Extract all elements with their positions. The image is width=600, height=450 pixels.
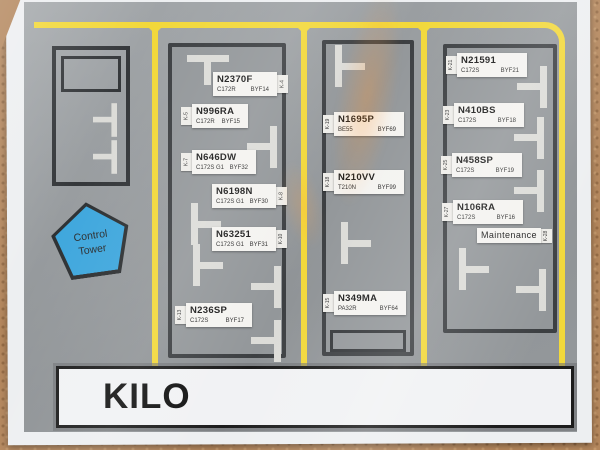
aircraft-code: BYF31	[250, 242, 268, 248]
taxiway-line-vertical-2	[301, 27, 307, 368]
spot-number-text: K-23	[446, 110, 451, 121]
spot-number-text: K-25	[444, 160, 449, 171]
spot-number-text: K-8	[279, 192, 284, 200]
aircraft-code: BYF14	[251, 87, 269, 93]
spot-number-tab: K-18	[323, 173, 334, 191]
aircraft-code: BYF30	[250, 199, 268, 205]
ramp-name: KILO	[103, 377, 191, 417]
aircraft-code: BYF21	[501, 68, 519, 74]
aircraft-model: C172S G1	[216, 242, 244, 248]
aircraft-plate: N6198N C172S G1 BYF30	[212, 184, 276, 208]
aircraft-code: BYF17	[226, 318, 244, 324]
aircraft-registration: N6198N	[216, 186, 272, 197]
aircraft-plate: Maintenance	[477, 228, 541, 243]
aircraft-registration: N63251	[216, 229, 272, 240]
t-stem	[93, 117, 117, 123]
aircraft-details: C172S G1 BYF30	[216, 199, 272, 205]
parking-spot-label: K-28 Maintenance	[477, 228, 541, 243]
aircraft-plate: N63251 C172S G1 BYF31	[212, 227, 276, 251]
t-stem	[247, 143, 277, 150]
aircraft-registration: N349MA	[338, 293, 402, 304]
aircraft-model: C172S	[456, 168, 474, 174]
aircraft-details: BE55 BYF69	[338, 127, 400, 133]
aircraft-registration: N210VV	[338, 172, 400, 183]
aircraft-model: C172S	[190, 318, 208, 324]
t-stem	[193, 262, 223, 269]
spot-number-text: K-15	[326, 298, 331, 309]
aircraft-plate: N458SP C172S BYF19	[452, 153, 522, 177]
spot-number-text: K-18	[326, 177, 331, 188]
spot-number-text: K-4	[280, 80, 285, 88]
aircraft-plate: N1695P BE55 BYF69	[334, 112, 404, 136]
t-stem	[204, 55, 211, 85]
aircraft-details: T210N BYF99	[338, 185, 400, 191]
tiedown-t-mark	[93, 103, 117, 137]
aircraft-registration: N458SP	[456, 155, 518, 166]
spot-number-text: K-10	[279, 234, 284, 245]
aircraft-plate: N236SP C172S BYF17	[186, 303, 252, 327]
spot-number-tab: K-8	[276, 187, 287, 205]
aircraft-code: BYF64	[380, 306, 398, 312]
t-stem	[459, 266, 489, 273]
control-tower-label: Control Tower	[47, 197, 135, 282]
spot-number-tab: K-4	[277, 75, 288, 93]
t-stem	[514, 134, 544, 141]
aircraft-plate: N996RA C172R BYF15	[192, 104, 248, 128]
aircraft-details: C172R BYF15	[196, 119, 244, 125]
t-stem	[516, 286, 546, 293]
aircraft-model: T210N	[338, 185, 356, 191]
spot-number-tab: K-13	[175, 306, 186, 324]
ramp-chart-photo: Control Tower	[0, 0, 600, 450]
control-tower-marker: Control Tower	[47, 197, 135, 282]
tiedown-t-mark	[93, 140, 117, 174]
aircraft-code: BYF18	[498, 118, 516, 124]
t-stem	[514, 187, 544, 194]
aircraft-registration: N236SP	[190, 305, 248, 316]
aircraft-details: C172S BYF18	[458, 118, 520, 124]
aircraft-details: C172S BYF16	[457, 215, 519, 221]
spot-number-tab: K-15	[323, 294, 334, 312]
aircraft-details: C172S BYF17	[190, 318, 248, 324]
aircraft-model: C172R	[217, 87, 236, 93]
aircraft-model: BE55	[338, 127, 353, 133]
aircraft-registration: N996RA	[196, 106, 244, 117]
aircraft-code: BYF16	[497, 215, 515, 221]
spot-number-tab: K-21	[446, 56, 457, 74]
spot-number-tab: K-19	[323, 115, 334, 133]
aircraft-details: C172R BYF14	[217, 87, 273, 93]
spot-number-tab: K-27	[442, 203, 453, 221]
aircraft-code: BYF69	[378, 127, 396, 133]
spot-number-text: K-13	[178, 310, 183, 321]
spot-number-text: K-7	[184, 158, 189, 166]
aircraft-model: C172S	[458, 118, 476, 124]
parking-spot-label: K-13 N236SP C172S BYF17	[186, 303, 252, 327]
tiedown-t-mark	[341, 222, 371, 264]
spot-number-tab: K-7	[181, 153, 192, 171]
aircraft-plate: N2370F C172R BYF14	[213, 72, 277, 96]
aircraft-model: C172S	[457, 215, 475, 221]
t-stem	[251, 283, 281, 290]
taxiway-line-vertical-1	[152, 27, 158, 368]
aircraft-details: C172S G1 BYF31	[216, 242, 272, 248]
kilo-banner: KILO	[56, 366, 574, 428]
aircraft-plate: N349MA PA32R BYF64	[334, 291, 406, 315]
aircraft-model: C172R	[196, 119, 215, 125]
aircraft-model: PA32R	[338, 306, 357, 312]
t-stem	[251, 337, 281, 344]
aircraft-model: C172S G1	[216, 199, 244, 205]
parking-spot-label: K-15 N349MA PA32R BYF64	[334, 291, 406, 315]
control-tower-text: Control Tower	[66, 227, 117, 261]
taxiway-line-vertical-3	[421, 27, 427, 368]
aircraft-registration: N1695P	[338, 114, 400, 125]
aircraft-details: PA32R BYF64	[338, 306, 402, 312]
aircraft-code: BYF19	[496, 168, 514, 174]
parking-spot-label: K-23 N410BS C172S BYF18	[454, 103, 524, 127]
aircraft-plate: N410BS C172S BYF18	[454, 103, 524, 127]
spot-number-text: K-5	[184, 112, 189, 120]
parking-spot-label: K-18 N210VV T210N BYF99	[334, 170, 404, 194]
tiedown-t-mark	[459, 248, 489, 290]
tiedown-t-mark	[251, 266, 281, 308]
parking-spot-label: K-10 N63251 C172S G1 BYF31	[212, 227, 276, 251]
parking-spot-label: K-25 N458SP C172S BYF19	[452, 153, 522, 177]
parking-spot-label: K-4 N2370F C172R BYF14	[213, 72, 277, 96]
aircraft-details: C172S G1 BYF32	[196, 165, 252, 171]
aircraft-details: C172S BYF19	[456, 168, 518, 174]
aircraft-details: C172S BYF21	[461, 68, 523, 74]
spot-number-text: K-21	[449, 60, 454, 71]
aircraft-registration: N21591	[461, 55, 523, 66]
top-left-inner-pad	[61, 56, 121, 92]
spot-number-text: K-19	[326, 119, 331, 130]
t-stem	[93, 154, 117, 160]
aircraft-code: BYF32	[230, 165, 248, 171]
parking-spot-label: K-21 N21591 C172S BYF21	[457, 53, 527, 77]
parking-spot-label: K-7 N646DW C172S G1 BYF32	[192, 150, 256, 174]
aircraft-plate: N106RA C172S BYF16	[453, 200, 523, 224]
aircraft-model: C172S	[461, 68, 479, 74]
spot-number-tab: K-5	[181, 107, 192, 125]
aircraft-model: C172S G1	[196, 165, 224, 171]
spot-number-tab: K-23	[443, 106, 454, 124]
parking-spot-label: K-8 N6198N C172S G1 BYF30	[212, 184, 276, 208]
parking-spot-label: K-27 N106RA C172S BYF16	[453, 200, 523, 224]
aircraft-registration: N2370F	[217, 74, 273, 85]
tiedown-t-mark	[251, 320, 281, 362]
aircraft-code: BYF99	[378, 185, 396, 191]
spot-number-tab: K-25	[441, 156, 452, 174]
aircraft-registration: N106RA	[457, 202, 519, 213]
t-stem	[341, 240, 371, 247]
t-stem	[335, 63, 365, 70]
aircraft-plate: N646DW C172S G1 BYF32	[192, 150, 256, 174]
aircraft-registration: Maintenance	[481, 230, 537, 240]
spot-number-tab: K-28	[541, 229, 552, 243]
spot-number-text: K-27	[445, 207, 450, 218]
parking-spot-label: K-5 N996RA C172R BYF15	[192, 104, 248, 128]
t-stem	[517, 83, 547, 90]
aircraft-registration: N410BS	[458, 105, 520, 116]
middle-row-bottom-pad	[330, 330, 406, 352]
spot-number-tab: K-10	[276, 230, 287, 248]
aircraft-code: BYF15	[222, 119, 240, 125]
aircraft-registration: N646DW	[196, 152, 252, 163]
aircraft-plate: N21591 C172S BYF21	[457, 53, 527, 77]
spot-number-text: K-28	[544, 231, 549, 242]
tiedown-t-mark	[335, 45, 365, 87]
tiedown-t-mark	[516, 269, 546, 311]
parking-spot-label: K-19 N1695P BE55 BYF69	[334, 112, 404, 136]
aircraft-plate: N210VV T210N BYF99	[334, 170, 404, 194]
